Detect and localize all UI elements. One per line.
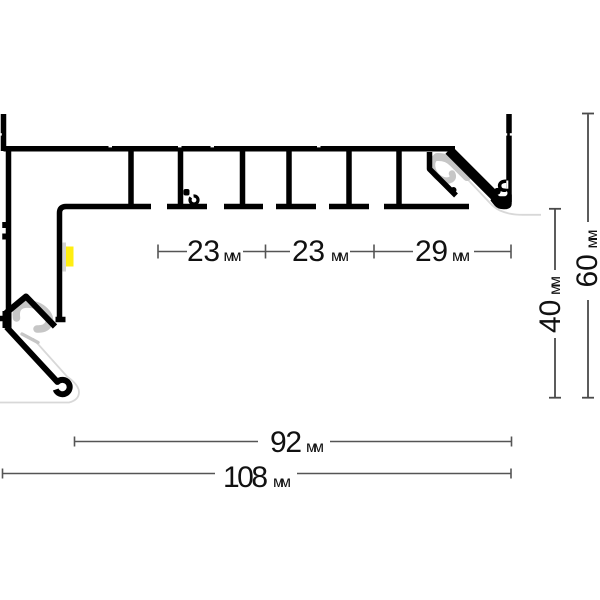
svg-text:29: 29 <box>415 235 448 268</box>
svg-text:23: 23 <box>187 235 220 268</box>
svg-text:мм: мм <box>273 474 291 491</box>
svg-text:мм: мм <box>331 248 349 265</box>
svg-text:мм: мм <box>452 248 470 265</box>
svg-text:мм: мм <box>547 276 564 295</box>
svg-text:92: 92 <box>270 426 302 459</box>
svg-text:108: 108 <box>223 461 268 494</box>
svg-text:мм: мм <box>224 248 242 265</box>
svg-text:40: 40 <box>534 300 567 333</box>
svg-text:60: 60 <box>571 254 600 287</box>
svg-text:23: 23 <box>292 235 325 268</box>
svg-text:мм: мм <box>306 439 324 456</box>
svg-text:мм: мм <box>584 230 600 249</box>
